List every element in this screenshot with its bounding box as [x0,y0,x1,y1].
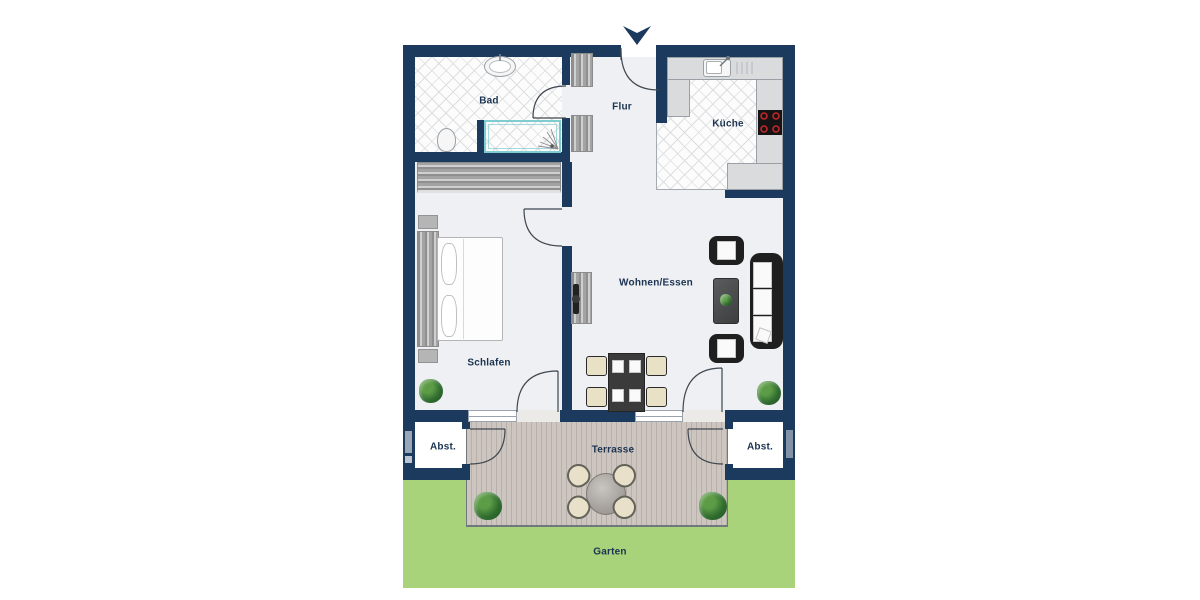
nightstand [418,215,438,229]
dining-chair [646,356,667,376]
floorplan-canvas: Bad Flur Küche Schlafen Wohnen/Essen Abs… [0,0,1200,600]
bed-duvet-fold [463,239,464,339]
room-label-abst-right: Abst. [747,442,773,453]
dining-chair [646,387,667,407]
kitchen-counter [727,163,783,190]
terrace-door-threshold [517,410,560,422]
shower-partition-wall [477,120,484,153]
room-label-terrasse: Terrasse [592,445,635,456]
wall-segment [656,45,667,123]
window [468,410,517,422]
bathroom-sink-basin [489,60,511,73]
place-setting [612,360,624,373]
wall-segment [462,422,470,429]
bed-pillow [441,295,457,337]
room-label-garten: Garten [593,547,626,558]
potted-plant [757,381,781,405]
sofa-cushion [753,262,772,288]
bed-headboard [417,231,439,347]
watermark-left-logo [405,456,412,463]
dining-chair [586,356,607,376]
terrace-plant [474,492,502,520]
wall-segment [659,45,795,57]
potted-plant [419,379,443,403]
room-label-flur: Flur [612,102,632,113]
room-label-abst-left: Abst. [430,442,456,453]
terrace-door-threshold [683,410,725,422]
armchair-seat [717,339,736,358]
bedroom-wardrobe [417,162,561,193]
shower-glass-inner [488,124,557,149]
table-plant [720,294,732,306]
wall-segment [403,57,415,422]
wall-segment [725,464,733,480]
dining-chair [586,387,607,407]
tv-lens [572,295,580,303]
wall-segment [403,410,468,422]
watermark-right [786,430,793,458]
place-setting [629,360,641,373]
wall-segment [462,464,470,480]
wall-segment [725,410,795,422]
room-label-wohnen: Wohnen/Essen [619,278,693,289]
wall-segment [727,468,795,480]
north-entrance-arrow-icon [623,26,651,45]
armchair-seat [717,241,736,260]
wall-segment [562,45,570,85]
wall-segment [725,422,733,429]
wall-segment [562,246,572,410]
wall-segment [725,190,783,198]
bed-pillow [441,243,457,285]
wall-segment [783,57,795,422]
wall-segment [403,468,468,480]
wall-segment [403,152,570,162]
room-label-schlafen: Schlafen [467,358,510,369]
watermark-left [405,431,412,453]
wall-segment [562,118,570,162]
kitchen-counter [667,79,690,117]
terrace-plant [699,492,727,520]
hall-cabinet [571,53,593,87]
place-setting [612,389,624,402]
hall-cabinet [571,115,593,152]
room-label-kueche: Küche [712,119,744,130]
place-setting [629,389,641,402]
wall-segment [562,162,572,207]
stove [758,110,782,135]
toilet [437,128,456,152]
nightstand [418,349,438,363]
room-label-bad: Bad [479,96,499,107]
kitchen-sink-basin [706,61,722,74]
sofa-cushion [753,289,772,315]
